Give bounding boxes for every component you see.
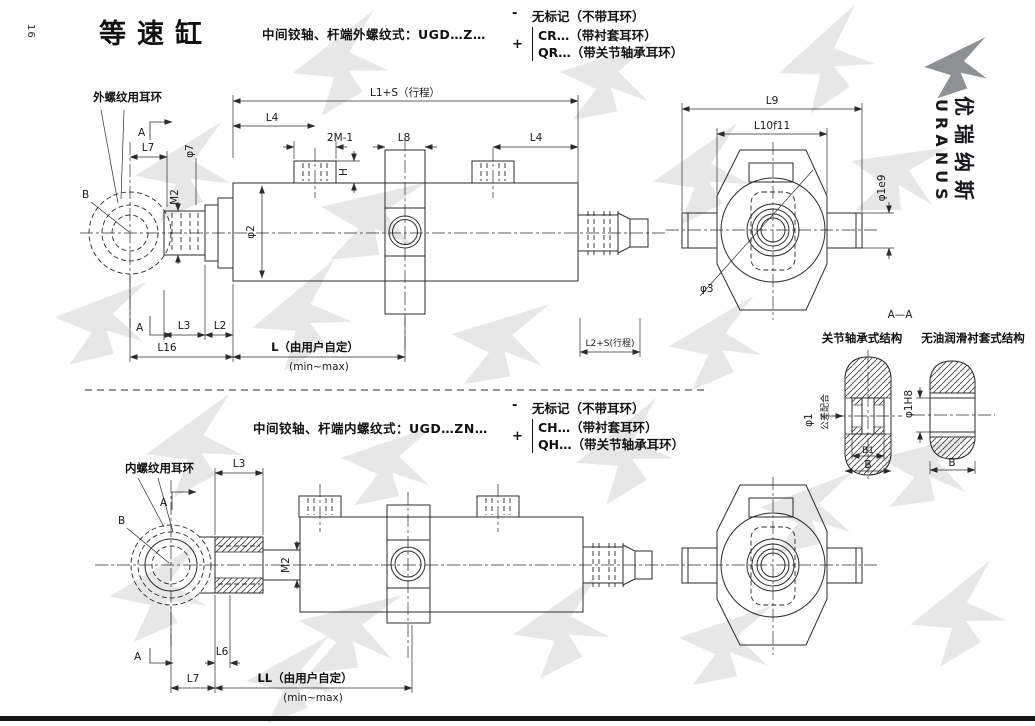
- option-bush-eyelet: CH…（带衬套耳环）: [538, 419, 684, 436]
- dim-l4-right: L4: [530, 132, 543, 144]
- section-a-marker-bottom: A: [134, 651, 142, 663]
- dim-l4-left: L4: [266, 112, 279, 124]
- uranus-logo-icon: [912, 34, 992, 104]
- dim-d3: φ3: [700, 283, 714, 295]
- port-block-left: [294, 148, 336, 198]
- dim-d1h8: φ1H8: [903, 390, 915, 418]
- dim-l10f11: L10f11: [754, 120, 790, 132]
- section-a-marker-top: A: [160, 497, 168, 509]
- dim-b-left: B: [864, 459, 871, 471]
- dim-l2s: L2+S(行程): [585, 337, 634, 349]
- point-b-label: B: [118, 515, 125, 527]
- port-block-right: [472, 148, 514, 198]
- dim-h: H: [338, 168, 350, 176]
- variant-options-external: - 无标记（不带耳环） + CR…（带衬套耳环） QR…（带关节轴承耳环）: [512, 6, 683, 61]
- section-left-caption: 关节轴承式结构: [822, 331, 903, 345]
- dim-l16: L16: [157, 342, 177, 354]
- page-title: 等速缸: [99, 12, 213, 51]
- engineering-drawing-canvas: 外螺纹用耳环 B A A φ2: [0, 0, 1035, 726]
- minus-sign: -: [512, 398, 532, 413]
- dim-b-right: B: [948, 457, 955, 469]
- port-block-right: [477, 484, 519, 532]
- eyelet-label: 外螺纹用耳环: [92, 90, 162, 104]
- dim-l7: L7: [187, 673, 200, 685]
- dim-d1: φ1: [803, 413, 815, 427]
- dim-m2: M2: [280, 557, 292, 573]
- dim-d1e9: φ1e9: [876, 175, 888, 202]
- dim-l2: L2: [214, 320, 227, 332]
- dim-l7: L7: [142, 142, 155, 154]
- option-no-eyelet: 无标记（不带耳环）: [532, 6, 645, 25]
- footer-rule: [0, 716, 1035, 721]
- cylinder-barrel: [233, 183, 578, 281]
- brand-name-cn: 优瑞纳斯: [951, 96, 980, 208]
- plus-sign: +: [512, 429, 532, 444]
- eyelet-label: 内螺纹用耳环: [125, 461, 194, 475]
- dim-l-user: L（由用户自定）: [271, 340, 359, 354]
- dim-d2: φ2: [245, 225, 257, 239]
- dim-b1: B1: [862, 446, 874, 456]
- dim-m2: M2: [169, 189, 181, 205]
- section-a-marker-bottom: A: [136, 322, 144, 334]
- option-bearing-eyelet: QH…（带关节轴承耳环）: [538, 436, 684, 453]
- option-group: CR…（带衬套耳环） QR…（带关节轴承耳环）: [532, 27, 683, 61]
- dim-minmax: (min~max): [289, 361, 349, 373]
- port-block-left: [299, 484, 341, 532]
- dim-l3: L3: [233, 458, 246, 470]
- point-b-label: B: [82, 189, 89, 201]
- option-bearing-eyelet: QR…（带关节轴承耳环）: [538, 44, 683, 61]
- minus-sign: -: [512, 6, 532, 21]
- dim-d7: φ7: [184, 144, 196, 158]
- variant-options-internal: - 无标记（不带耳环） + CH…（带衬套耳环） QH…（带关节轴承耳环）: [512, 398, 684, 453]
- catalog-page: 外螺纹用耳环 B A A φ2: [0, 0, 1035, 726]
- section-right-caption: 无油润滑衬套式结构: [920, 331, 1025, 345]
- section-title: A—A: [888, 309, 914, 321]
- dim-l3: L3: [178, 320, 191, 332]
- spherical-bearing-section: φ1 公差配合 B1 B: [803, 350, 902, 482]
- dim-l6: L6: [216, 646, 229, 658]
- model-formula-external: 中间铰轴、杆端外螺纹式：UGD…Z…: [262, 24, 486, 43]
- dim-ll-user: LL（由用户自定）: [257, 671, 352, 685]
- option-group: CH…（带衬套耳环） QH…（带关节轴承耳环）: [532, 419, 684, 453]
- fit-note: 公差配合: [819, 394, 831, 430]
- model-formula-internal: 中间铰轴、杆端内螺纹式：UGD…ZN…: [253, 418, 488, 437]
- dim-l9: L9: [766, 95, 779, 107]
- brand-name-en: URANUS: [932, 99, 951, 205]
- dim-2m1: 2M-1: [327, 132, 353, 144]
- dim-l8: L8: [398, 132, 411, 144]
- page-number: 16: [25, 24, 36, 39]
- option-no-eyelet: 无标记（不带耳环）: [532, 398, 645, 417]
- lower-end-view: [666, 477, 880, 655]
- dim-minmax: (min~max): [283, 692, 343, 704]
- option-bush-eyelet: CR…（带衬套耳环）: [538, 27, 683, 44]
- plus-sign: +: [512, 37, 532, 52]
- section-a-marker-top: A: [138, 127, 146, 139]
- cylinder-barrel: [300, 517, 583, 612]
- dim-l1s: L1+S（行程）: [370, 86, 440, 99]
